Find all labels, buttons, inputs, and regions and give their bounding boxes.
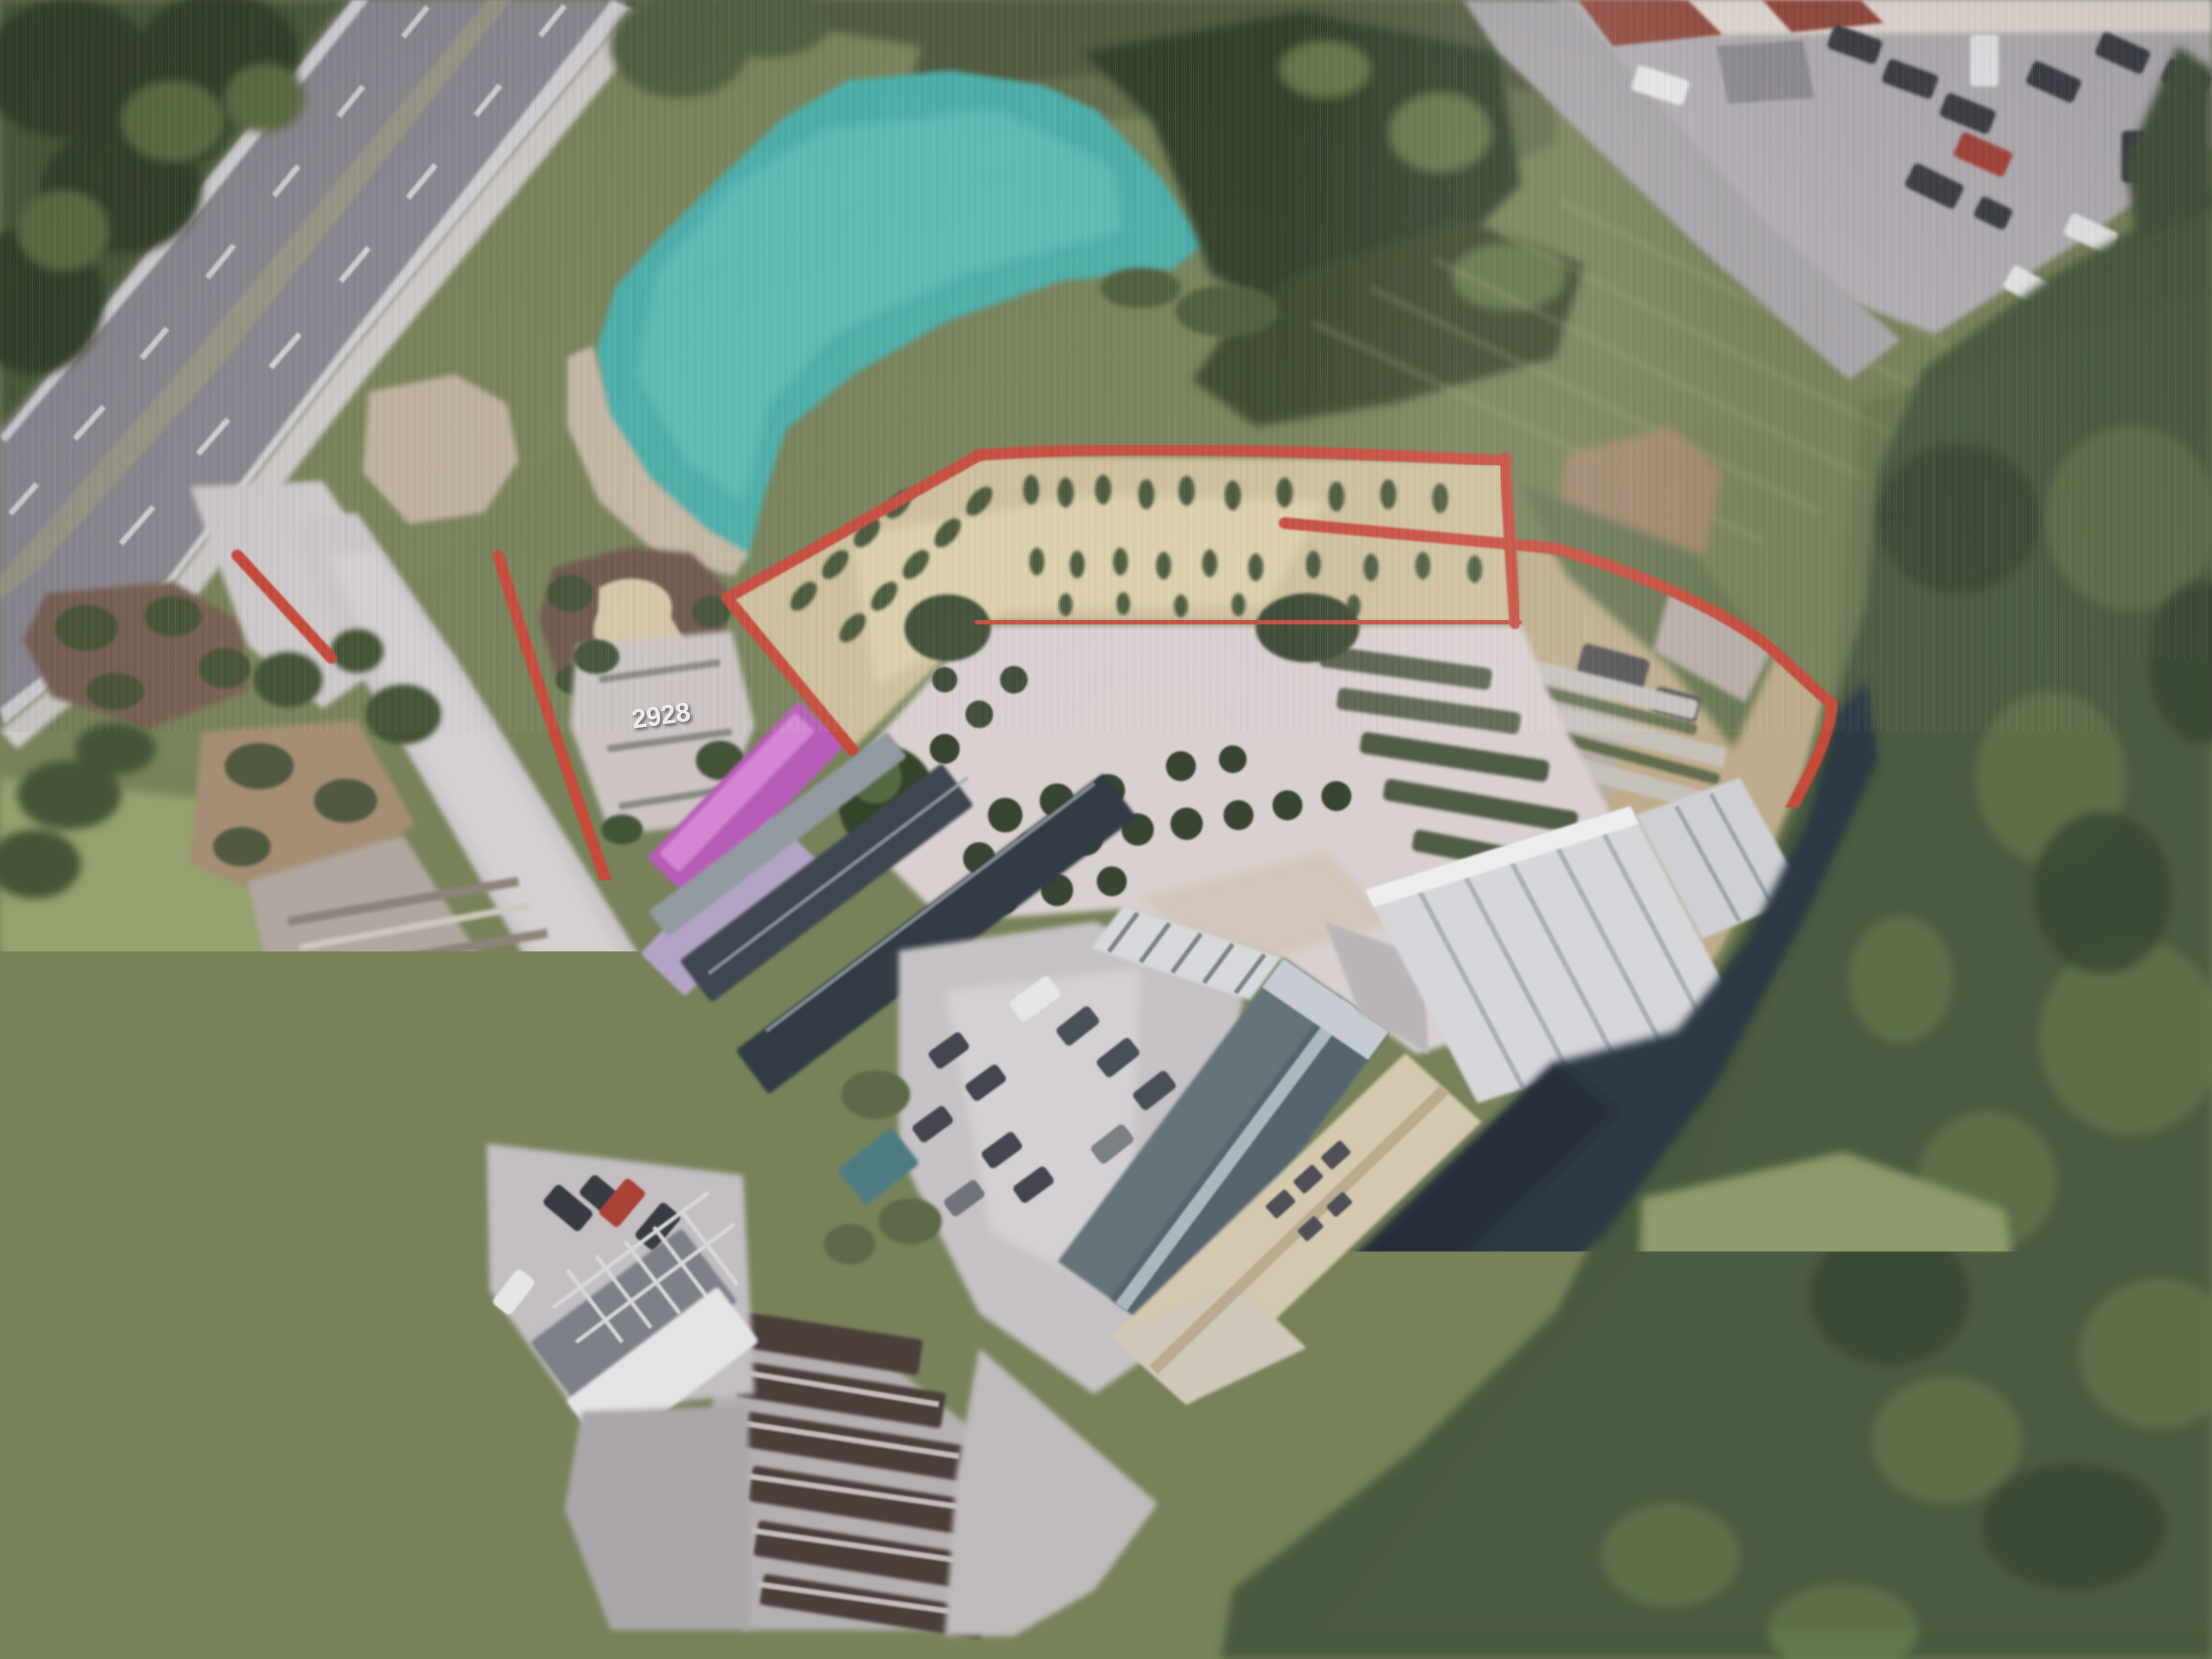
svg-text:Peterson varieties: Peterson varieties (8, 1638, 128, 1656)
